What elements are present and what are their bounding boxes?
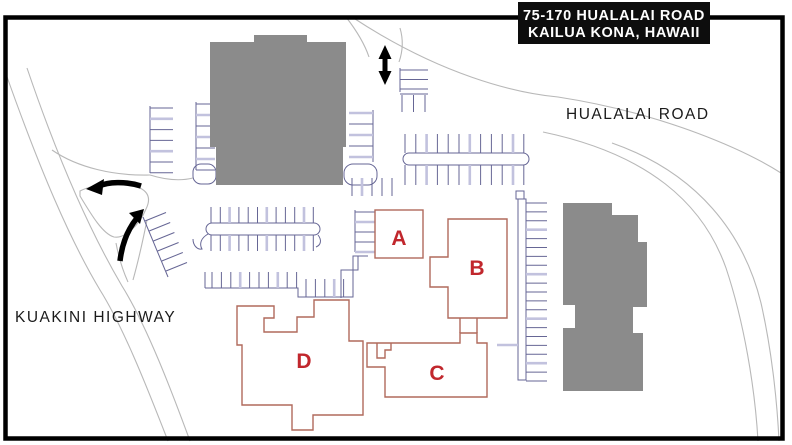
road-edge-entry-upper-curb — [52, 150, 150, 175]
outlined-buildings: A B C D — [237, 210, 507, 430]
road-edge-curb-to-planter — [150, 175, 193, 180]
building-c-outline — [367, 333, 487, 397]
road-edge-kuakini-inner — [27, 68, 190, 441]
parking-stub-north-south — [400, 94, 428, 112]
building-a-label: A — [391, 227, 406, 250]
parking-stub-north-east — [400, 68, 428, 92]
title-line-1: 75-170 HUALALAI ROAD — [523, 8, 705, 24]
road-edge-entry-right-curb — [133, 220, 147, 280]
title-line-2: KAILUA KONA, HAWAII — [528, 25, 700, 41]
parking-diagonal-entry — [143, 213, 187, 278]
hualalai-road-label: HUALALAI ROAD — [566, 106, 710, 123]
site-map: A B C D HUALALAI ROAD KUAKINI HIGHWAY 75… — [0, 0, 792, 445]
building-gray-north — [210, 35, 346, 185]
building-b-label: B — [469, 257, 484, 280]
road-edge-kuakini-outer — [6, 74, 168, 441]
road-edge-top-entry-left — [346, 17, 369, 57]
title-box: 75-170 HUALALAI ROAD KAILUA KONA, HAWAII — [518, 2, 710, 44]
site-plan-stage: A B C D HUALALAI ROAD KUAKINI HIGHWAY 75… — [0, 0, 792, 445]
parking-double-row-east — [403, 134, 529, 165]
parking-row-west-column — [150, 106, 173, 173]
kuakini-highway-label: KUAKINI HIGHWAY — [15, 309, 176, 326]
left-turn-arrow-icon — [86, 179, 141, 195]
road-entry-island — [80, 184, 148, 237]
parking-row-west-of-a — [341, 210, 375, 298]
parking-stubs-above-a — [352, 178, 392, 196]
parking-double-row-center-lower — [211, 235, 313, 251]
parking-row-building-right — [349, 110, 373, 162]
building-gray-east — [563, 203, 647, 391]
parking-row-south-right — [306, 279, 353, 297]
building-c-label: C — [429, 362, 444, 385]
building-d-label: D — [296, 350, 311, 373]
parking-double-row-east-lower — [405, 165, 524, 185]
two-way-arrow-icon — [379, 45, 392, 85]
parking-double-row-center — [193, 207, 320, 249]
